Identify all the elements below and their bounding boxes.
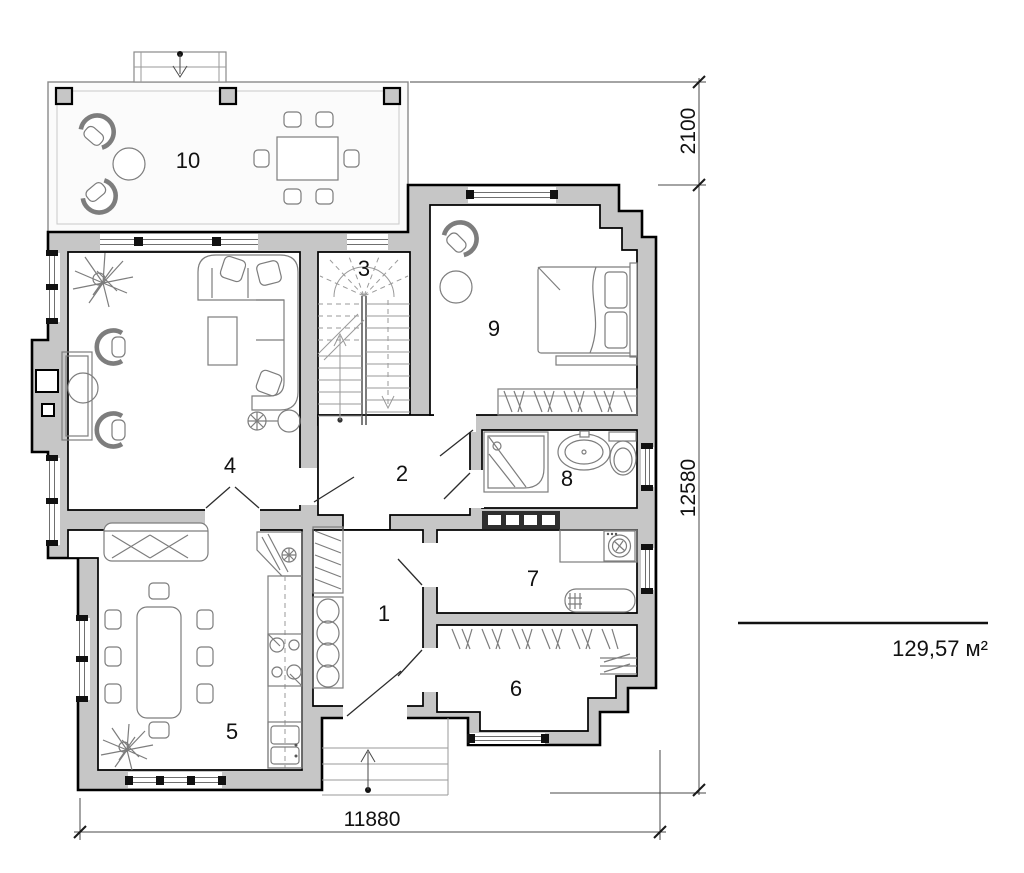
room-label-4: 4 [224, 453, 236, 478]
room-label-6: 6 [510, 676, 522, 701]
room-label-8: 8 [561, 466, 573, 491]
terrace-post [220, 88, 236, 104]
toilet-icon [609, 432, 636, 475]
dim-front: 11880 [344, 808, 401, 831]
room-label-1: 1 [378, 601, 390, 626]
coffee-table-icon [208, 317, 237, 365]
area-label: 129,57 м² [738, 623, 988, 661]
hall-cabinet-icon [482, 511, 560, 529]
dim-side: 12580 [677, 459, 700, 517]
round-table-icon [68, 373, 98, 403]
round-table-icon [440, 271, 472, 303]
room-label-3: 3 [358, 256, 370, 281]
room-label-9: 9 [488, 316, 500, 341]
sofa-bench-icon [104, 523, 208, 561]
terrace-steps [134, 51, 226, 82]
porch-steps [322, 718, 448, 795]
total-area-value: 129,57 м² [892, 636, 988, 661]
armchair-icon [97, 331, 125, 364]
room-kitchen-dining [68, 530, 302, 770]
terrace [48, 51, 408, 232]
bed-icon [538, 263, 637, 365]
room-label-2: 2 [396, 461, 408, 486]
room-label-10: 10 [176, 148, 200, 173]
terrace-post [56, 88, 72, 104]
terrace-post [384, 88, 400, 104]
bench-chest-icon [565, 589, 635, 612]
room-label-7: 7 [527, 566, 539, 591]
washing-machine-icon [604, 531, 635, 561]
dim-terrace-depth: 2100 [677, 108, 700, 155]
room-hall [318, 415, 470, 530]
room-label-5: 5 [226, 719, 238, 744]
armchair-icon [97, 414, 125, 447]
floor-plan: 2100 12580 11880 129,57 м² 1 2 3 4 5 6 7… [0, 0, 1024, 873]
terrace-coffee-table-icon [113, 148, 145, 180]
room-entrance-hall [313, 530, 423, 706]
floor-plan-svg: 2100 12580 11880 129,57 м² 1 2 3 4 5 6 7… [0, 0, 1024, 873]
